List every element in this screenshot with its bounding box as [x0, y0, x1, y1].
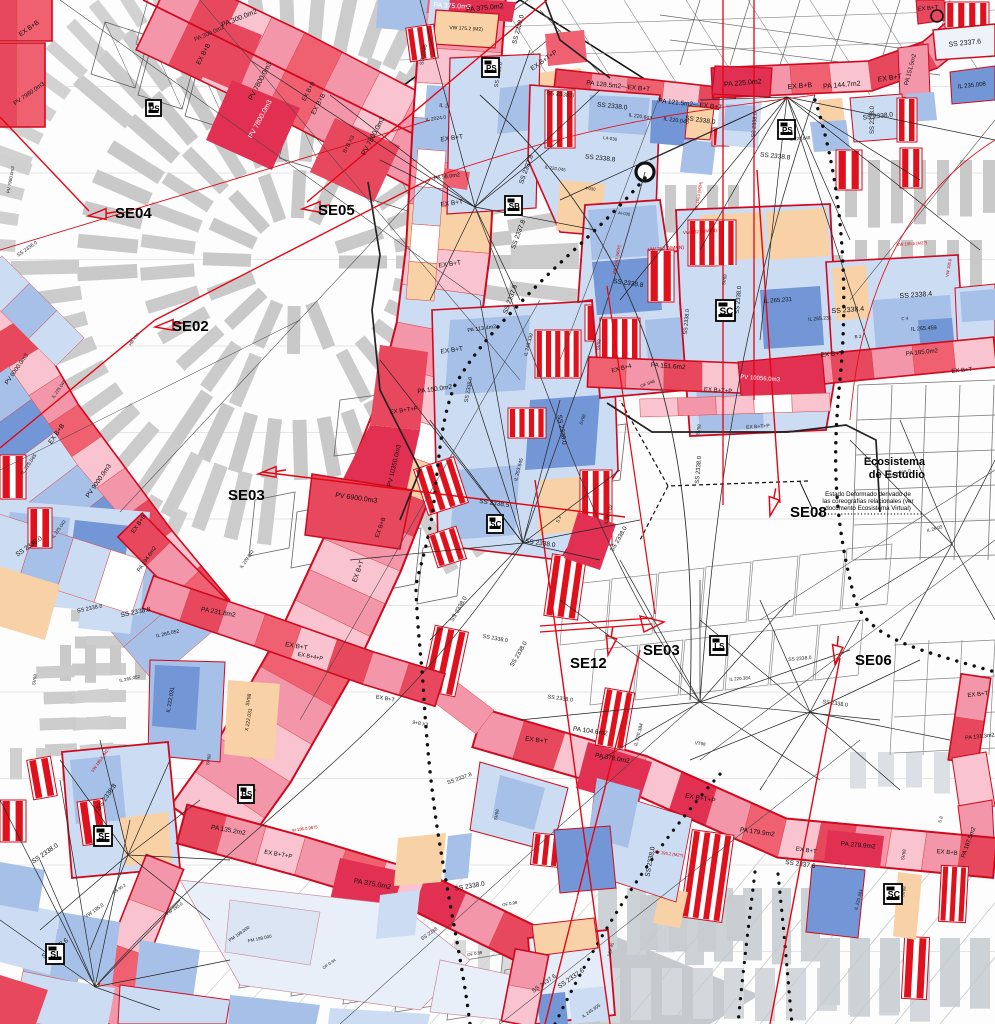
- svg-text:las coreografías relacionales: las coreografías relacionales (ver: [822, 498, 913, 505]
- svg-text:SC: SC: [490, 520, 501, 529]
- svg-text:SE05: SE05: [318, 202, 355, 219]
- svg-text:SB: SB: [509, 202, 520, 211]
- svg-text:SS 2338.0: SS 2338.0: [870, 105, 876, 134]
- svg-text:documento Ecosistema Virtual): documento Ecosistema Virtual): [825, 505, 911, 512]
- svg-text:BS: BS: [241, 790, 253, 799]
- svg-text:SE08: SE08: [790, 504, 827, 521]
- svg-text:SE03: SE03: [228, 487, 265, 504]
- svg-text:SL: SL: [50, 950, 62, 960]
- svg-text:PS: PS: [149, 104, 160, 113]
- svg-text:C 4: C 4: [901, 316, 909, 322]
- svg-text:Ecosistema: Ecosistema: [864, 456, 926, 468]
- svg-text:SC: SC: [888, 890, 901, 900]
- svg-text:B 3: B 3: [854, 334, 862, 339]
- svg-text:LS: LS: [714, 642, 725, 651]
- svg-text:PS: PS: [782, 126, 793, 135]
- svg-text:SE02: SE02: [172, 318, 209, 335]
- svg-text:SE06: SE06: [855, 652, 892, 669]
- svg-text:SE03: SE03: [643, 642, 680, 659]
- svg-text:SE12: SE12: [570, 655, 607, 672]
- svg-text:PS: PS: [486, 64, 497, 73]
- svg-text:SC: SC: [719, 306, 733, 317]
- svg-text:SE04: SE04: [115, 205, 152, 222]
- svg-text:SF: SF: [98, 832, 110, 842]
- svg-text:Estado Deformado derivado de: Estado Deformado derivado de: [825, 491, 911, 498]
